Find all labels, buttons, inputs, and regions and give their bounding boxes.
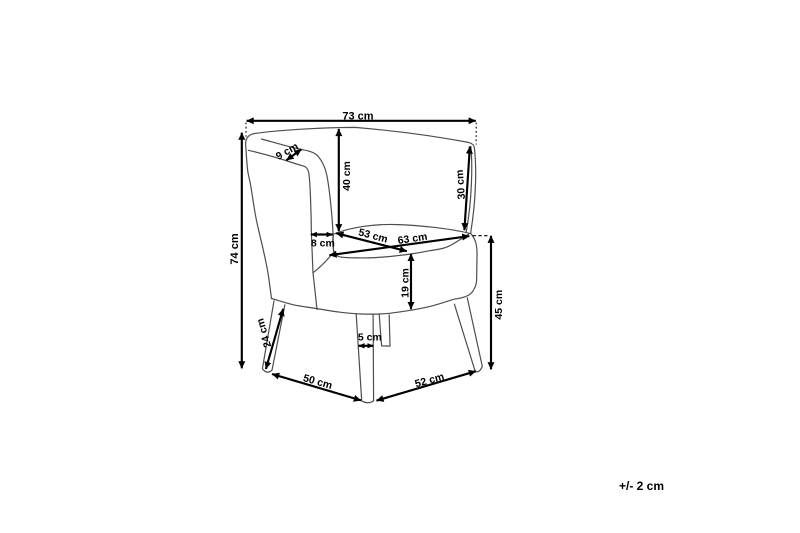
svg-text:52 cm: 52 cm: [414, 371, 446, 391]
svg-text:19 cm: 19 cm: [399, 268, 411, 298]
svg-text:50 cm: 50 cm: [302, 372, 334, 392]
svg-text:24 cm: 24 cm: [254, 317, 274, 349]
svg-text:73 cm: 73 cm: [342, 111, 373, 123]
svg-text:+/- 2 cm: +/- 2 cm: [619, 479, 664, 493]
svg-text:63 cm: 63 cm: [397, 231, 428, 247]
svg-text:74 cm: 74 cm: [229, 233, 241, 264]
svg-text:8 cm: 8 cm: [311, 238, 335, 250]
svg-text:30 cm: 30 cm: [454, 169, 468, 200]
svg-text:5 cm: 5 cm: [358, 332, 382, 344]
svg-text:40 cm: 40 cm: [341, 161, 353, 191]
svg-text:45 cm: 45 cm: [493, 290, 505, 320]
